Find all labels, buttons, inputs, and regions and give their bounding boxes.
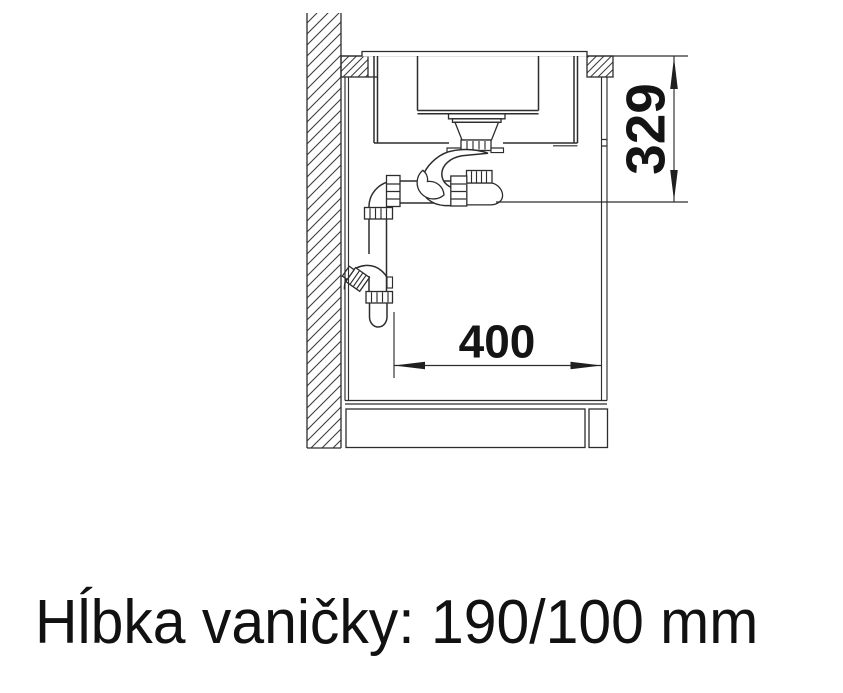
dim-height-label: 329 [615, 83, 677, 175]
downpipe-top-nut [365, 208, 393, 220]
trap-outlet-nut [467, 171, 493, 184]
cabinet-foot [589, 409, 608, 448]
page: 400 329 Hĺbka vaničky: 190/100 mm [0, 0, 843, 693]
pipe-union-nut-right [451, 176, 467, 206]
caption: Hĺbka vaničky: 190/100 mm [35, 586, 758, 657]
pipe-union-nut-left [387, 176, 401, 207]
caption-text: Hĺbka vaničky: 190/100 mm [35, 586, 758, 657]
plinth [346, 409, 585, 448]
diagram-canvas: 400 329 Hĺbka vaničky: 190/100 mm [0, 0, 843, 693]
wall [307, 13, 341, 448]
dim-width-label: 400 [459, 316, 536, 368]
countertop-right-section [587, 56, 613, 77]
sink-rim [362, 52, 587, 57]
downpipe-lower-nut [366, 292, 393, 304]
branch-clip [387, 277, 393, 288]
countertop-left-section [341, 56, 368, 77]
